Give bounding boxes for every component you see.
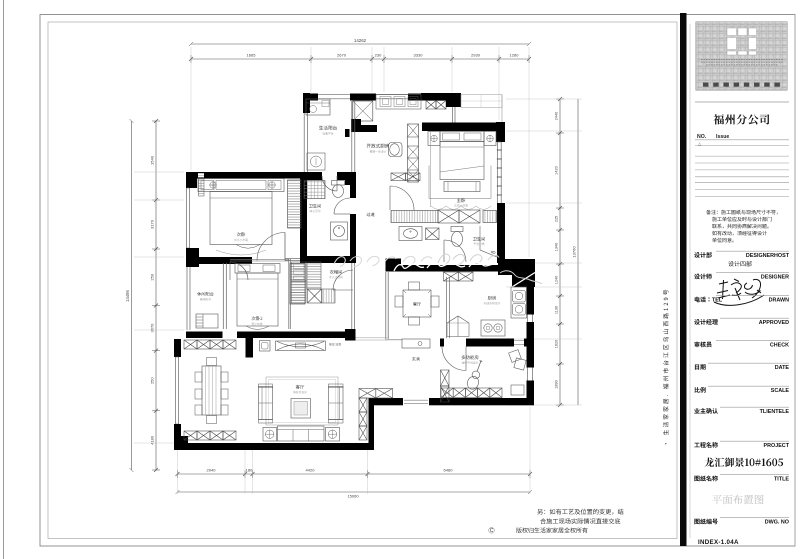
svg-text:APPROVED: APPROVED (759, 320, 789, 326)
svg-text:1540: 1540 (150, 155, 155, 165)
svg-text:3330: 3330 (414, 53, 424, 58)
svg-text:DATE: DATE (775, 365, 790, 371)
svg-text:TITLE: TITLE (774, 477, 789, 483)
svg-text:3170: 3170 (150, 219, 155, 229)
svg-text:230: 230 (375, 53, 382, 58)
svg-text:15060: 15060 (347, 494, 359, 499)
svg-text:1240: 1240 (555, 276, 559, 284)
svg-text:TEL: TEL (712, 298, 723, 304)
svg-text:1620: 1620 (555, 340, 559, 348)
svg-text:DESIGNER: DESIGNER (761, 275, 789, 281)
svg-text:1420: 1420 (555, 166, 559, 174)
svg-text:4180: 4180 (150, 435, 155, 445)
svg-text:1280: 1280 (510, 53, 520, 58)
svg-text:2670: 2670 (337, 53, 347, 58)
svg-text:DESIGNERHOST: DESIGNERHOST (746, 253, 790, 259)
svg-text:1665: 1665 (247, 53, 257, 58)
svg-text:2940: 2940 (207, 468, 217, 473)
svg-text:6480: 6480 (444, 468, 454, 473)
svg-text:250: 250 (150, 377, 155, 384)
svg-text:1340: 1340 (555, 243, 559, 251)
svg-text:225: 225 (555, 216, 559, 222)
svg-text:3670: 3670 (150, 323, 155, 333)
svg-text:TLIENTELE: TLIENTELE (760, 409, 790, 415)
svg-text:NO.: NO. (697, 134, 707, 140)
svg-text:DRAWN: DRAWN (769, 298, 789, 304)
svg-text:14262: 14262 (354, 38, 367, 43)
svg-text:4420: 4420 (306, 468, 316, 473)
svg-text:13760: 13760 (572, 246, 577, 258)
svg-text:INDEX-1.04A: INDEX-1.04A (698, 539, 739, 546)
svg-text:2440: 2440 (555, 112, 559, 120)
svg-text:DWG. NO: DWG. NO (765, 520, 789, 526)
svg-text:250: 250 (150, 273, 155, 280)
svg-text:1130: 1130 (555, 306, 559, 314)
svg-text:Issue: Issue (716, 134, 729, 140)
svg-text:14495: 14495 (125, 290, 130, 302)
svg-text:1890: 1890 (555, 380, 559, 388)
svg-text:CHECK: CHECK (770, 343, 789, 349)
svg-text:180: 180 (246, 468, 253, 473)
svg-text:SCALE: SCALE (771, 388, 790, 394)
svg-text:PROJECT: PROJECT (764, 443, 790, 449)
svg-text:2930: 2930 (471, 53, 481, 58)
